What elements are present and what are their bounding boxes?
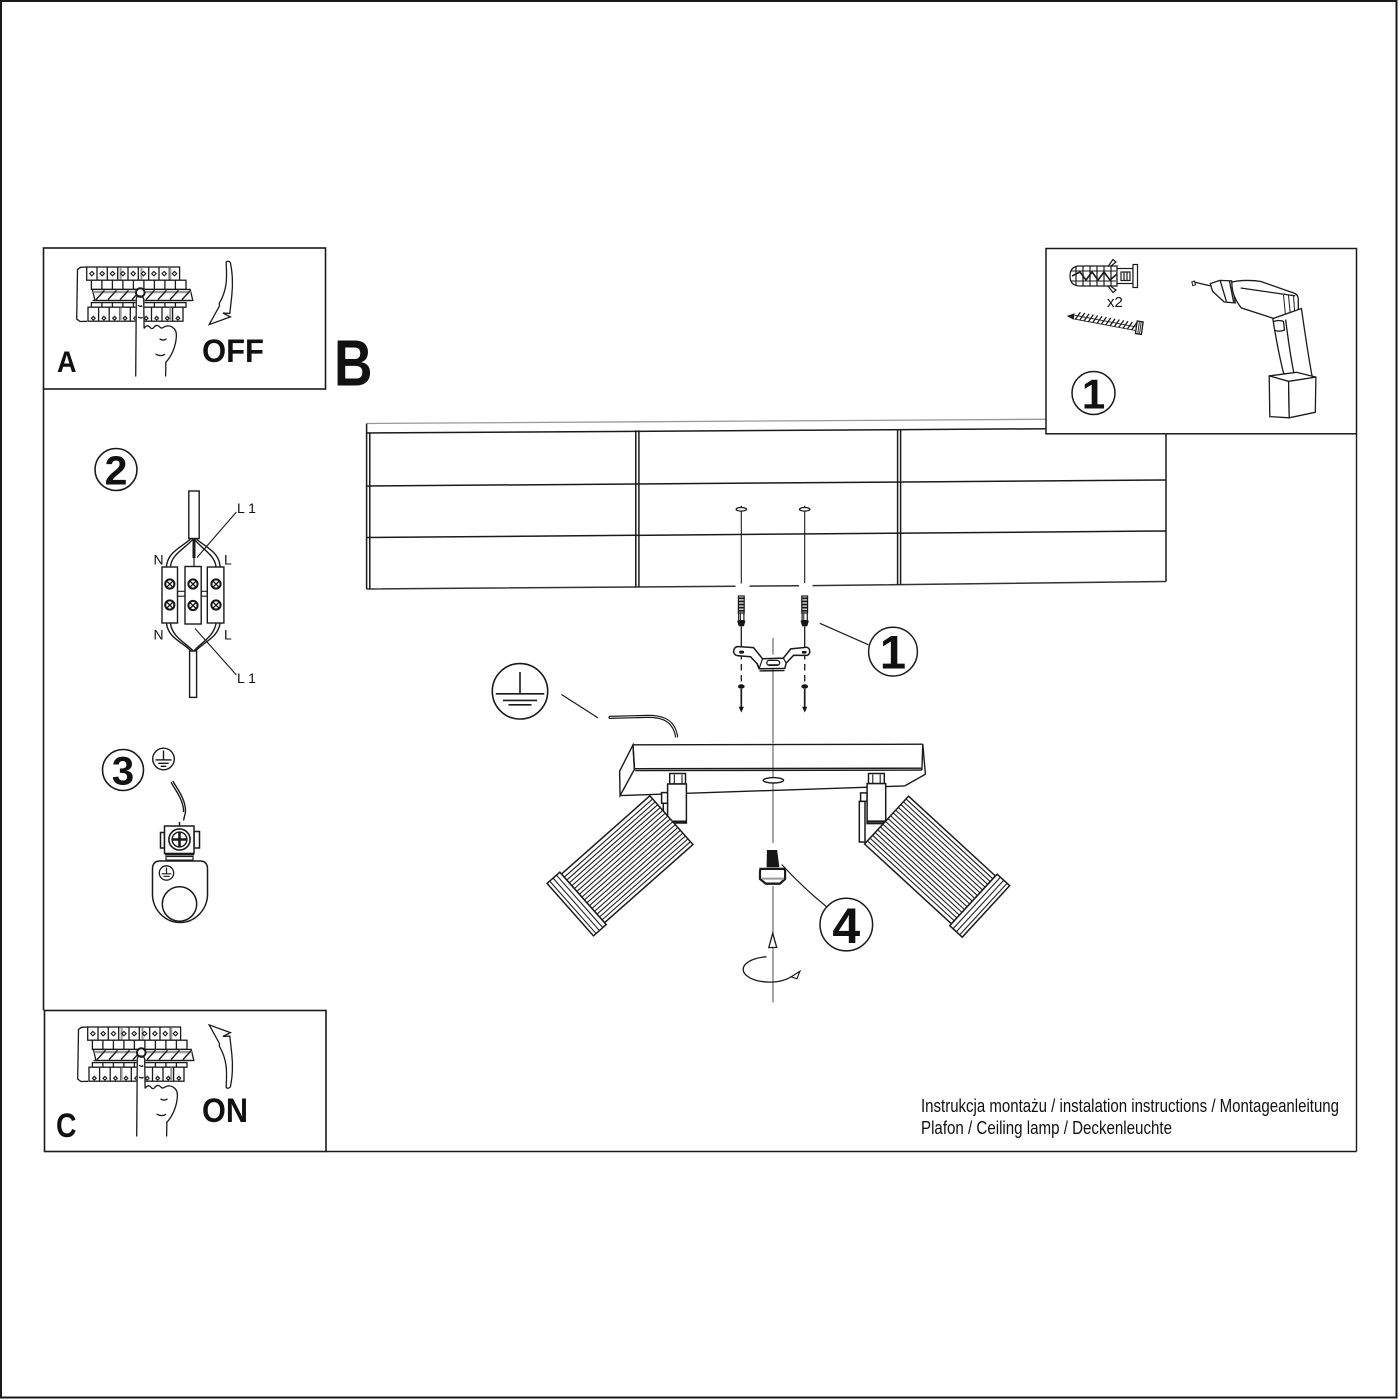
svg-text:x2: x2 [1107,294,1123,311]
svg-text:Plafon / Ceiling lamp / Decken: Plafon / Ceiling lamp / Deckenleuchte [921,1118,1172,1138]
svg-text:OFF: OFF [202,333,264,369]
svg-text:1: 1 [880,626,906,679]
svg-text:C: C [56,1107,77,1145]
svg-text:L: L [224,627,232,643]
svg-text:B: B [334,327,373,400]
svg-text:A: A [57,346,77,379]
svg-text:4: 4 [832,898,860,954]
svg-text:N: N [154,627,164,643]
svg-text:L: L [224,552,232,568]
svg-text:L 1: L 1 [237,670,256,686]
svg-text:1: 1 [1082,370,1105,417]
svg-text:L 1: L 1 [237,500,256,516]
svg-text:ON: ON [202,1092,248,1130]
svg-text:Instrukcja montażu / instalati: Instrukcja montażu / instalation instruc… [921,1096,1339,1116]
svg-text:3: 3 [112,750,134,794]
svg-text:2: 2 [105,448,128,494]
svg-text:N: N [154,552,164,568]
